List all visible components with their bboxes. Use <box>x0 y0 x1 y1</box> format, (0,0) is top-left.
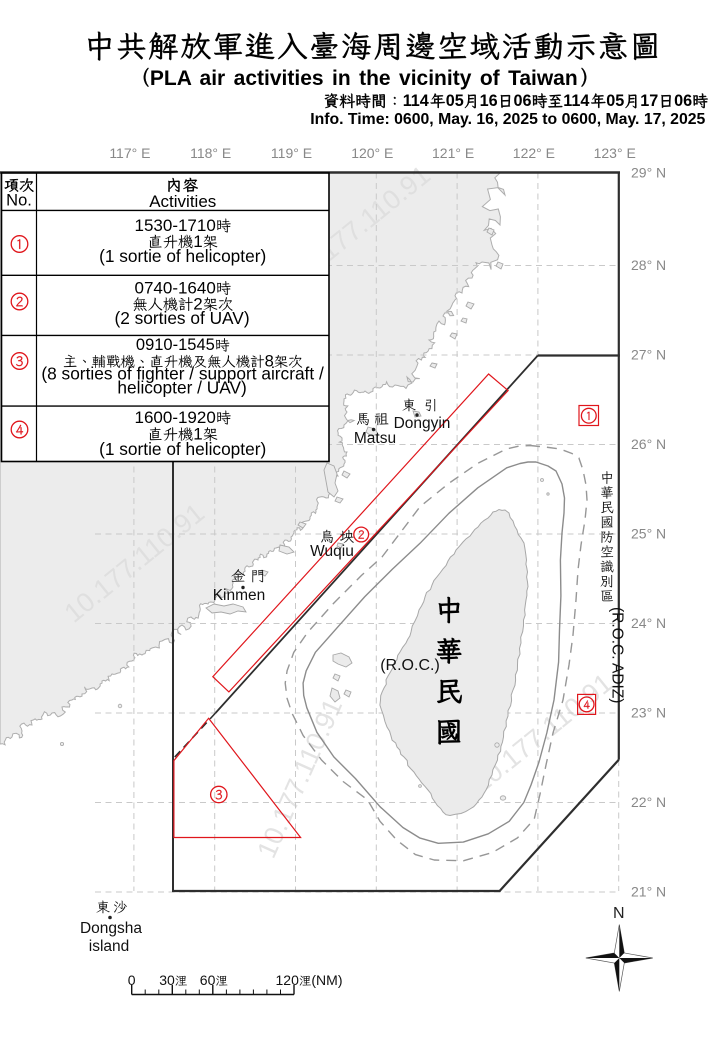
svg-text:(R.O.C. ADIZ): (R.O.C. ADIZ) <box>609 607 626 703</box>
svg-text:30: 30 <box>159 972 175 988</box>
svg-text:(2 sorties of UAV): (2 sorties of UAV) <box>115 308 250 328</box>
svg-text:Info. Time: 0600, May. 16, 202: Info. Time: 0600, May. 16, 2025 to 0600,… <box>310 111 705 128</box>
svg-text:Dongyin: Dongyin <box>394 415 451 432</box>
svg-text:05: 05 <box>446 92 464 110</box>
svg-text:1530-1710: 1530-1710 <box>135 216 216 235</box>
svg-text:123° E: 123° E <box>594 145 636 161</box>
svg-text:(1 sortie of helicopter): (1 sortie of helicopter) <box>99 246 266 266</box>
svg-text:118° E: 118° E <box>190 145 231 161</box>
svg-text:N: N <box>613 905 625 922</box>
svg-text:29° N: 29° N <box>631 165 666 181</box>
svg-text:21° N: 21° N <box>631 884 666 900</box>
svg-text:(NM): (NM) <box>311 972 342 988</box>
svg-text:PLA air activities in the vici: PLA air activities in the vicinity of Ta… <box>150 67 578 90</box>
svg-text:0: 0 <box>128 972 136 988</box>
svg-text:06: 06 <box>514 92 532 110</box>
svg-text:120° E: 120° E <box>351 145 393 161</box>
svg-text:119° E: 119° E <box>271 145 312 161</box>
svg-text:23° N: 23° N <box>631 705 666 721</box>
svg-text:No.: No. <box>6 192 32 210</box>
svg-text:0740-1640: 0740-1640 <box>135 279 216 298</box>
svg-text:22° N: 22° N <box>631 794 666 810</box>
svg-text:26° N: 26° N <box>631 436 666 452</box>
svg-text:27° N: 27° N <box>631 347 666 363</box>
svg-text:28° N: 28° N <box>631 257 666 273</box>
svg-text:60: 60 <box>200 972 216 988</box>
svg-text:Activities: Activities <box>149 192 216 211</box>
svg-text:121° E: 121° E <box>432 145 474 161</box>
svg-text:16: 16 <box>480 92 498 110</box>
svg-text:Matsu: Matsu <box>354 430 396 447</box>
svg-text:114: 114 <box>563 92 589 110</box>
svg-text:Dongsha: Dongsha <box>80 920 142 937</box>
svg-text:05: 05 <box>606 92 624 110</box>
svg-text:122° E: 122° E <box>513 145 555 161</box>
svg-text:24° N: 24° N <box>631 615 666 631</box>
svg-text:17: 17 <box>640 92 658 110</box>
svg-text:117° E: 117° E <box>109 145 150 161</box>
svg-text:island: island <box>89 938 130 955</box>
svg-text:25° N: 25° N <box>631 526 666 542</box>
svg-text:0910-1545: 0910-1545 <box>136 336 215 354</box>
svg-text:114: 114 <box>403 92 429 110</box>
svg-text:helicopter / UAV): helicopter / UAV) <box>117 378 246 398</box>
svg-text:120: 120 <box>276 972 300 988</box>
svg-text:(1 sortie of helicopter): (1 sortie of helicopter) <box>99 439 266 459</box>
svg-text:1600-1920: 1600-1920 <box>135 408 216 427</box>
svg-text:Kinmen: Kinmen <box>213 587 266 604</box>
svg-text:Wuqiu: Wuqiu <box>310 543 354 560</box>
svg-text:06: 06 <box>674 92 692 110</box>
svg-text:(R.O.C.): (R.O.C.) <box>380 657 440 674</box>
